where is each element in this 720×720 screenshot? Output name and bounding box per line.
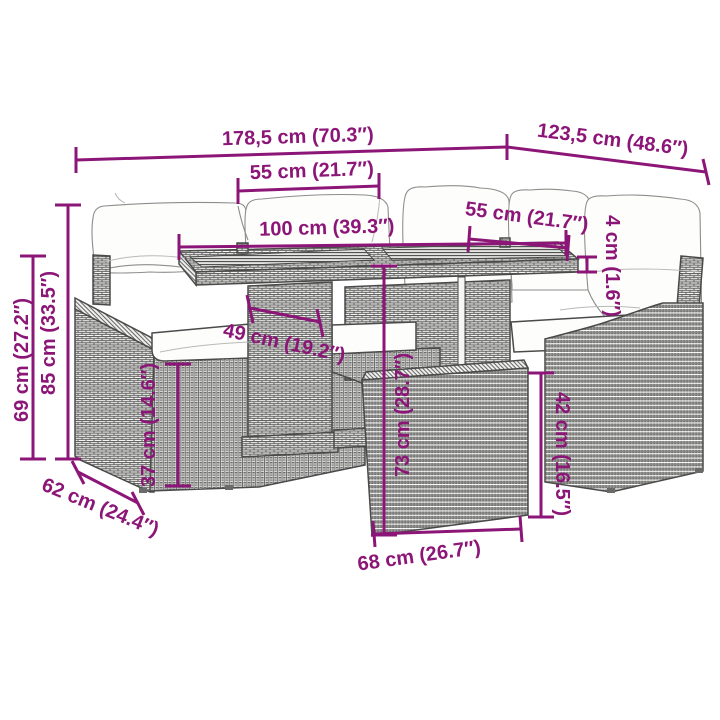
svg-text:100 cm (39.3″): 100 cm (39.3″) <box>259 215 395 241</box>
svg-text:42 cm (16.5″): 42 cm (16.5″) <box>551 392 573 516</box>
svg-text:85 cm (33.5″): 85 cm (33.5″) <box>38 271 60 395</box>
svg-text:4 cm (1.6″): 4 cm (1.6″) <box>601 215 623 317</box>
svg-text:69 cm (27.2″): 69 cm (27.2″) <box>11 298 33 422</box>
svg-text:73 cm (28.7″): 73 cm (28.7″) <box>392 353 414 477</box>
svg-text:37 cm (14.6″): 37 cm (14.6″) <box>138 363 160 487</box>
svg-text:178,5 cm (70.3″): 178,5 cm (70.3″) <box>222 124 374 150</box>
svg-text:55 cm (21.7″): 55 cm (21.7″) <box>249 158 374 184</box>
